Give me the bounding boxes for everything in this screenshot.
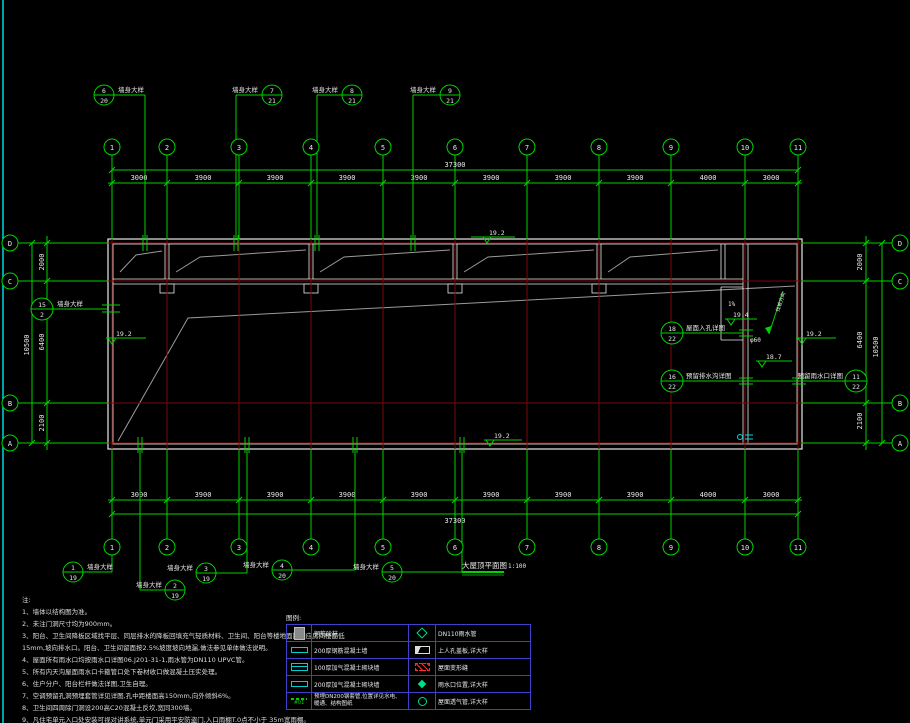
note-line: 5、所有内天沟屋面雨水口卡箍管口处下卷材收口做混凝土压实处理。: [22, 666, 302, 678]
callout-label: 预留雨水口详图: [798, 371, 844, 380]
callout-num: 1: [71, 564, 75, 572]
wall-200-symbol: [291, 681, 308, 687]
note-line: 1、墙体以结构图为准。: [22, 606, 302, 618]
grid-col-label: 11: [794, 544, 802, 552]
note-line: 4、屋面所有雨水口均按雨水口详图06.J201-31-1,雨水管为DN110 U…: [22, 654, 302, 666]
grid-col-label: 7: [525, 544, 529, 552]
dim-left-total: 10500: [23, 334, 31, 355]
grid-col-label: 9: [669, 544, 673, 552]
callout-sheet: 19: [202, 575, 210, 583]
dim-bot-2: 3900: [195, 491, 212, 499]
callout-label: 墙身大样: [243, 560, 270, 569]
dim-bot-10: 3000: [763, 491, 780, 499]
callout-num: 9: [448, 87, 452, 95]
callout-label: 墙身大样: [118, 85, 145, 94]
legend-row: 200厚加气混凝土砌块墙 雨水口位置,详大样: [287, 676, 531, 693]
dim-top-9: 4000: [700, 174, 717, 182]
grid-col-label: 3: [237, 144, 241, 152]
grid-col-label: 6: [453, 544, 457, 552]
grid-col-label: 10: [741, 544, 749, 552]
plan-scale: 1:100: [508, 563, 526, 570]
dim-top-6: 3900: [483, 174, 500, 182]
callout-num: 16: [668, 373, 676, 381]
dim-bot-1: 3000: [131, 491, 148, 499]
callout-num: 7: [270, 87, 274, 95]
callout-leaders: [53, 95, 845, 590]
callout-sheet: 19: [69, 574, 77, 582]
note-line: 9、凡住宅单元入口处安装可视对讲系统,单元门采用平安防盗门,入口雨棚T.0点不小…: [22, 714, 302, 723]
level-value: 19.2: [116, 330, 132, 338]
dim-right-3: 2100: [856, 413, 864, 430]
dim-bot-9: 4000: [700, 491, 717, 499]
wall-200-symbol: [291, 647, 308, 653]
grid-col-label: 3: [237, 544, 241, 552]
callout-sheet: 21: [446, 97, 454, 105]
grid-col-label: 1: [110, 544, 114, 552]
grid-col-label: 9: [669, 144, 673, 152]
legend-text: 预埋DN200钢套管,位置详见水电、暖通、结构图纸: [312, 693, 409, 710]
grid-col-label: 10: [741, 144, 749, 152]
dim-top-10: 3000: [763, 174, 780, 182]
grid-col-label: 2: [165, 544, 169, 552]
level-markers: 19.2 19.2 19.4 19.2 18.7 19.2: [106, 229, 836, 446]
legend-row: 钢筋砼柱 DN110雨水管: [287, 625, 531, 642]
legend-row: 200厚钢筋混凝土墙 上人孔盖板,详大样: [287, 642, 531, 659]
grid-col-label: 8: [597, 544, 601, 552]
callout-label: 墙身大样: [232, 85, 259, 94]
structural-grid-lines: [104, 234, 806, 455]
grid-col-label: 6: [453, 144, 457, 152]
concrete-column-symbol: [294, 627, 305, 640]
legend-row: 100厚加气混凝土砌块墙 屋面变形缝: [287, 659, 531, 676]
grid-col-label: 4: [309, 144, 313, 152]
legend-text: 200厚加气混凝土砌块墙: [312, 676, 409, 693]
dim-left-1: 2000: [38, 254, 46, 271]
level-value: 19.4: [733, 311, 749, 319]
grid-row-label: B: [898, 400, 902, 408]
dim-left-2: 6400: [38, 334, 46, 351]
grid-col-label: 7: [525, 144, 529, 152]
dim-bot-3: 3900: [267, 491, 284, 499]
callout-num: 2: [173, 582, 177, 590]
dim-left-3: 2100: [38, 415, 46, 432]
grid-row-label: D: [898, 240, 902, 248]
callout-num: 6: [102, 87, 106, 95]
legend-text: 200厚钢筋混凝土墙: [312, 642, 409, 659]
callout-sheet: 22: [852, 383, 860, 391]
callout-sheet: 22: [668, 335, 676, 343]
level-value: 19.2: [494, 432, 510, 440]
grid-row-label: B: [8, 400, 12, 408]
callout-num: 11: [852, 373, 860, 381]
legend-title: 图例:: [286, 612, 516, 622]
access-plate-symbol: [415, 646, 430, 654]
callout-label: 墙身大样: [57, 299, 84, 308]
vent-pipe-symbol: [418, 697, 427, 706]
legend-text: 雨水口位置,详大样: [436, 676, 531, 693]
callout-label: 屋面入孔详图: [686, 323, 725, 332]
dim-bot-5: 3900: [411, 491, 428, 499]
note-line: 6、住户分户、阳台栏杆做法详图,卫生自理。: [22, 678, 302, 690]
note-line: 15mm,坡向排水口。阳台、卫生间留面按2.5%坡度坡向地漏,做法参见单体做法说…: [22, 642, 302, 654]
callout-num: 4: [280, 562, 284, 570]
notes-title: 注:: [22, 594, 302, 606]
note-line: 2、未注门洞尺寸均为900mm。: [22, 618, 302, 630]
slope-arrow-label: 找坡方向: [774, 291, 787, 312]
wall-100-symbol: [291, 663, 308, 671]
note-line: 3、阳台、卫生间降板区域找平层、同层排水的降板回填充气轻质材料、卫生间、阳台等楼…: [22, 630, 302, 642]
legend-text: 屋面透气管,详大样: [436, 693, 531, 710]
callout-sheet: 20: [100, 97, 108, 105]
dim-bot-4: 3900: [339, 491, 356, 499]
dim-top-3: 3900: [267, 174, 284, 182]
callout-label: 墙身大样: [87, 562, 114, 571]
callout-num: 3: [204, 565, 208, 573]
callout-label: 墙身大样: [312, 85, 339, 94]
callout-sheet: 20: [278, 572, 286, 580]
dim-right-1: 2000: [856, 254, 864, 271]
callout-label: 墙身大样: [136, 580, 163, 589]
callout-label: 墙身大样: [353, 562, 380, 571]
grid-col-label: 5: [381, 144, 385, 152]
legend-text: 钢筋砼柱: [312, 625, 409, 642]
legend-text: DN110雨水管: [436, 625, 531, 642]
dim-top-8: 3900: [627, 174, 644, 182]
callout-num: 15: [38, 301, 46, 309]
callout-num: 8: [350, 87, 354, 95]
grid-row-label: C: [8, 278, 12, 286]
level-value: 19.2: [489, 229, 505, 237]
callout-label: 墙身大样: [167, 563, 194, 572]
level-value: 18.7: [766, 353, 782, 361]
legend-text: 上人孔盖板,详大样: [436, 642, 531, 659]
dim-bot-8: 3900: [627, 491, 644, 499]
legend-row: #01 预埋DN200钢套管,位置详见水电、暖通、结构图纸 屋面透气管,详大样: [287, 693, 531, 710]
legend: 图例: 钢筋砼柱 DN110雨水管 200厚钢筋混凝土墙 上人孔盖板,详大样 1…: [286, 612, 516, 710]
callout-sheet: 21: [348, 97, 356, 105]
grid-col-label: 2: [165, 144, 169, 152]
cad-canvas[interactable]: 3000 3900 3900 3900 3900 3900 3900 3900 …: [0, 0, 910, 723]
dim-top-total: 37300: [444, 161, 465, 169]
grid-col-label: 4: [309, 544, 313, 552]
legend-table: 钢筋砼柱 DN110雨水管 200厚钢筋混凝土墙 上人孔盖板,详大样 100厚加…: [286, 624, 531, 710]
note-line: 8、卫生间四周除门洞设200高C20混凝土反坎,宽同300墙。: [22, 702, 302, 714]
legend-text: 屋面变形缝: [436, 659, 531, 676]
slope-percent-label: 1%: [728, 301, 736, 308]
dim-right-2: 6400: [856, 332, 864, 349]
plan-title-block: 大屋顶平面图 1:100: [462, 560, 526, 575]
callout-sheet: 22: [668, 383, 676, 391]
legend-text: 100厚加气混凝土砌块墙: [312, 659, 409, 676]
dim-top-2: 3900: [195, 174, 212, 182]
grid-col-label: 5: [381, 544, 385, 552]
grid-col-label: 11: [794, 144, 802, 152]
grid-row-label: C: [898, 278, 902, 286]
note-line: 7、空调预留孔洞预埋套管详见详图,孔中距楼面高150mm,向外倾斜6%。: [22, 690, 302, 702]
callout-sheet: 21: [268, 97, 276, 105]
callout-label: 预留排水沟详图: [686, 371, 732, 380]
general-notes: 注: 1、墙体以结构图为准。 2、未注门洞尺寸均为900mm。 3、阳台、卫生间…: [22, 594, 302, 723]
dim-bot-7: 3900: [555, 491, 572, 499]
callout-num: 5: [390, 564, 394, 572]
grid-col-label: 1: [110, 144, 114, 152]
grid-col-label: 8: [597, 144, 601, 152]
callout-label: 墙身大样: [410, 85, 437, 94]
dim-right-total: 10500: [872, 336, 880, 357]
pipe-diameter-label: φ60: [750, 337, 761, 344]
rain-pipe-symbol: [416, 627, 427, 638]
callout-sheet: 2: [40, 311, 44, 319]
dim-top-7: 3900: [555, 174, 572, 182]
callout-num: 18: [668, 325, 676, 333]
plan-title: 大屋顶平面图: [462, 560, 507, 570]
pipe-sleeve-tag: #01: [289, 700, 309, 706]
grid-row-label: D: [8, 240, 12, 248]
level-value: 19.2: [806, 330, 822, 338]
dim-bot-6: 3900: [483, 491, 500, 499]
rain-outlet-symbol: [418, 680, 426, 688]
expansion-joint-symbol: [415, 663, 430, 671]
callout-sheet: 20: [388, 574, 396, 582]
dim-top-4: 3900: [339, 174, 356, 182]
